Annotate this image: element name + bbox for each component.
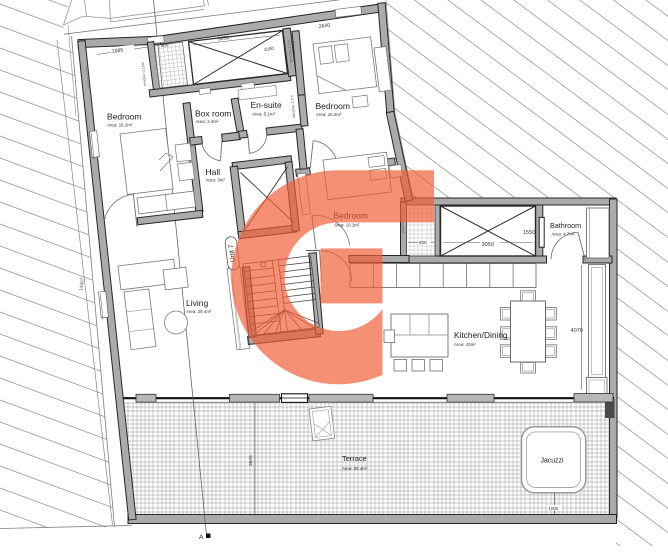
svg-text:A: A <box>199 534 204 541</box>
svg-text:3050: 3050 <box>482 242 494 248</box>
svg-text:Box room: Box room <box>195 109 231 119</box>
svg-text:Area: 59.4m²: Area: 59.4m² <box>342 466 368 471</box>
svg-text:800: 800 <box>161 42 170 48</box>
svg-text:Area: 3m²: Area: 3m² <box>206 178 226 183</box>
svg-text:Area: 16.2m²: Area: 16.2m² <box>316 112 342 117</box>
svg-text:Living: Living <box>186 298 208 308</box>
svg-text:Bathroom: Bathroom <box>550 221 581 230</box>
svg-text:Area: 2.4m²: Area: 2.4m² <box>196 119 219 124</box>
svg-text:Area: 43m²: Area: 43m² <box>454 342 476 347</box>
svg-text:Area: 5.1m²: Area: 5.1m² <box>252 112 275 117</box>
svg-text:4070: 4070 <box>571 328 583 334</box>
svg-text:Bedroom: Bedroom <box>107 112 142 122</box>
svg-text:1550: 1550 <box>523 230 535 236</box>
svg-text:Kitchen/Dining: Kitchen/Dining <box>454 330 508 340</box>
svg-text:Bedroom: Bedroom <box>316 101 351 111</box>
svg-text:Area: 16.2m²: Area: 16.2m² <box>107 123 133 128</box>
svg-text:Area: 10.1m²: Area: 10.1m² <box>334 223 360 228</box>
svg-text:Area: 4.7m²: Area: 4.7m² <box>552 232 575 237</box>
svg-text:En-suite: En-suite <box>251 100 282 110</box>
svg-text:Terrace: Terrace <box>342 454 367 463</box>
svg-text:3603: 3603 <box>248 455 254 466</box>
svg-text:Area: 29.4m²: Area: 29.4m² <box>186 309 212 314</box>
svg-text:1000: 1000 <box>549 506 559 511</box>
svg-text:Jacuzzi: Jacuzzi <box>541 458 564 465</box>
svg-text:Hall: Hall <box>206 167 221 177</box>
svg-text:800: 800 <box>419 240 427 245</box>
